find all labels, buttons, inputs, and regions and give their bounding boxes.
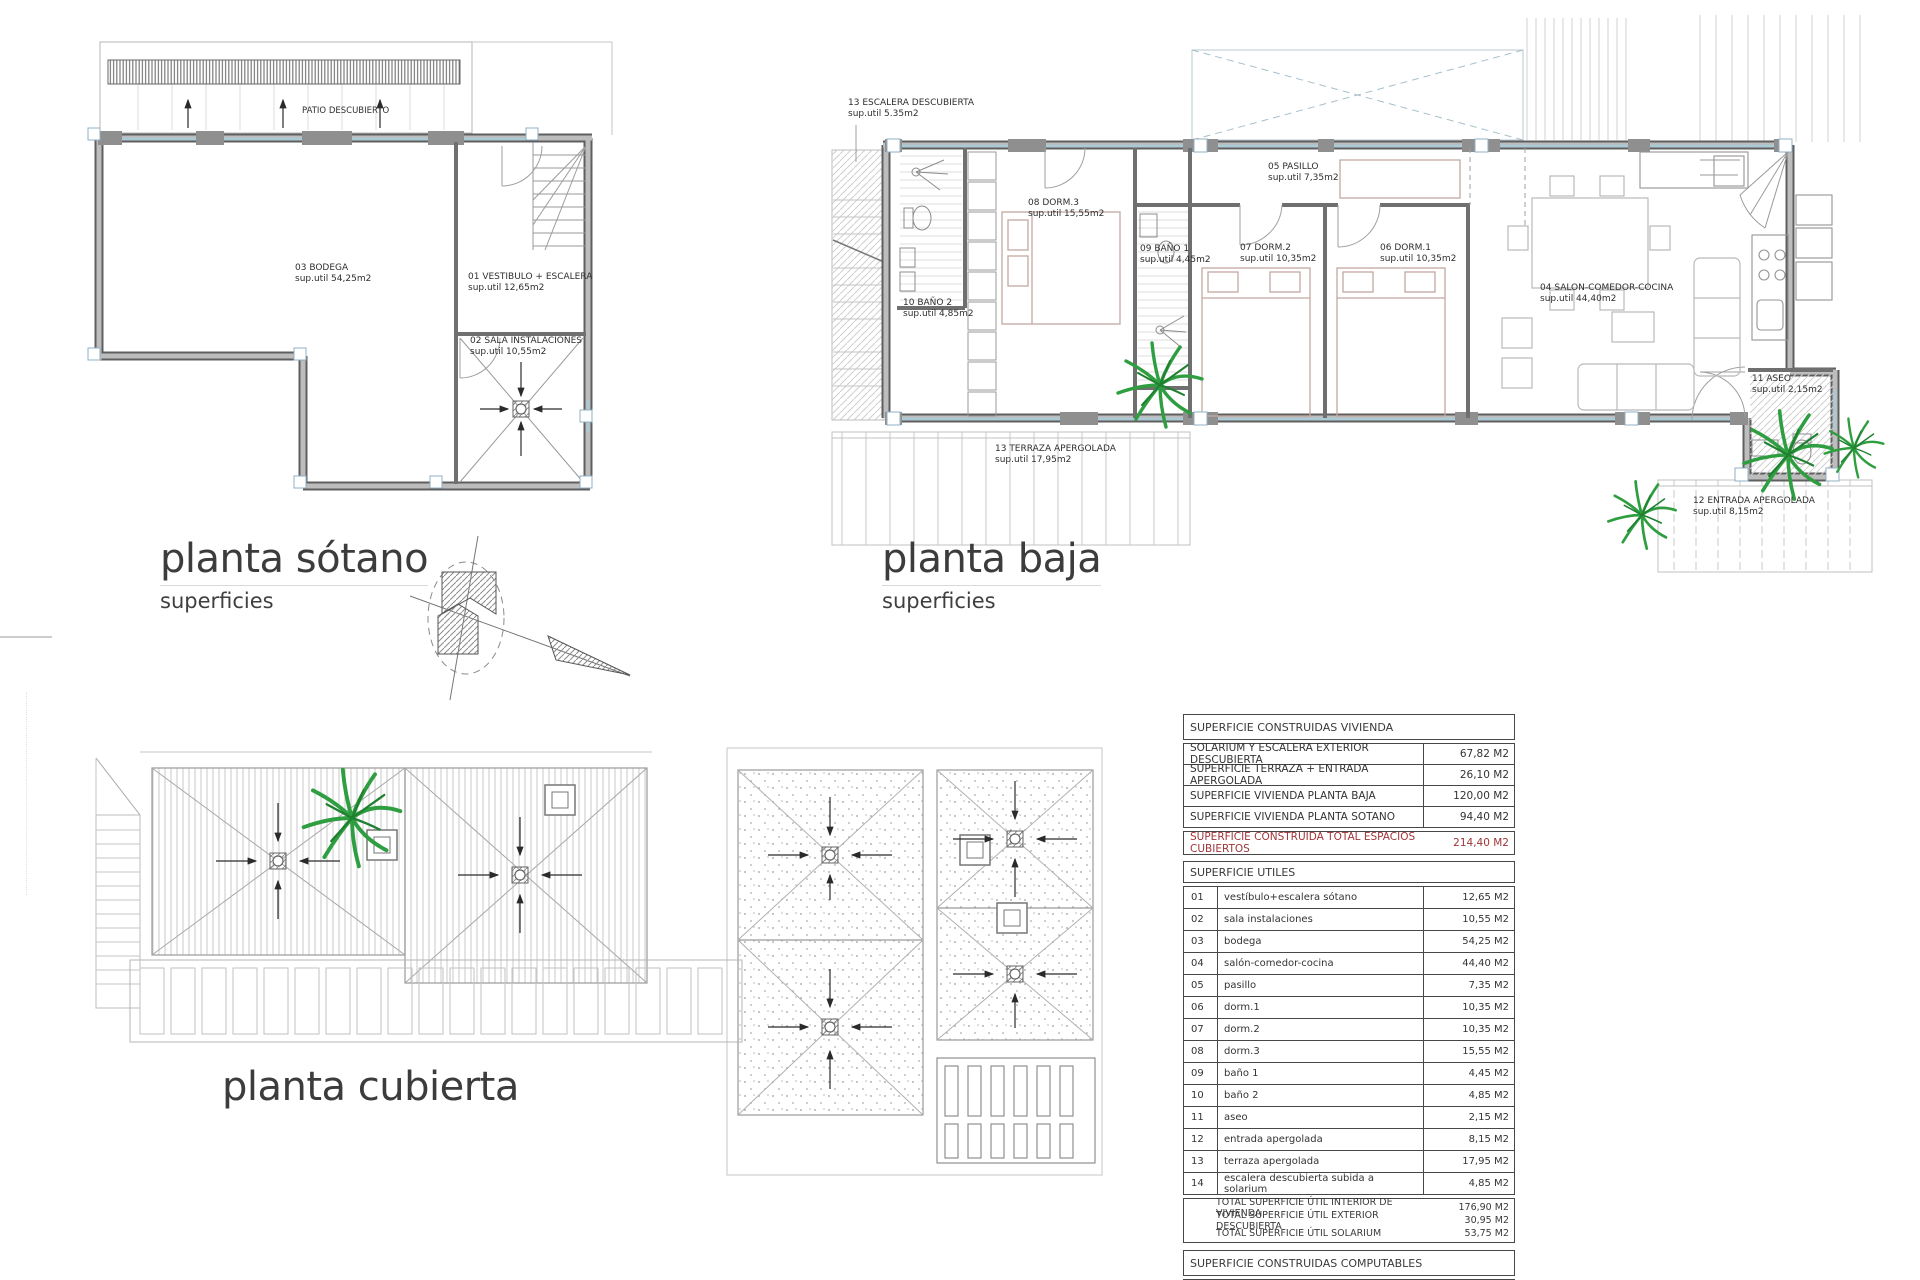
table-cell-number: 02 (1184, 909, 1218, 930)
table-row: 14escalera descubierta subida a solarium… (1184, 1172, 1514, 1194)
table-cell-value: 7,35 M2 (1423, 975, 1514, 996)
drawing-sheet: PATIO DESCUBIERTO 03 BODEGAsup.util 54,2… (0, 0, 1920, 1280)
table-cell-number: 08 (1184, 1041, 1218, 1062)
table-cell-label: entrada apergolada (1218, 1129, 1423, 1150)
patio-label: PATIO DESCUBIERTO (302, 106, 389, 116)
table-computables-header: SUPERFICIE CONSTRUIDAS COMPUTABLES (1183, 1250, 1515, 1276)
table-cell-number: 01 (1184, 887, 1218, 908)
table-row: 10baño 24,85 M2 (1184, 1084, 1514, 1106)
table-utiles-totals: TOTAL SUPERFICIE ÚTIL INTERIOR DE VIVIEN… (1183, 1198, 1515, 1243)
room-label-terraza: 13 TERRAZA APERGOLADAsup.util 17,95m2 (995, 444, 1116, 467)
title-planta-cubierta: planta cubierta (222, 1064, 519, 1113)
table-row: 02sala instalaciones10,55 M2 (1184, 908, 1514, 930)
table-cell-value: 53,75 M2 (1424, 1228, 1514, 1239)
table-construidas-body: SOLARIUM Y ESCALERA EXTERIOR DESCUBIERTA… (1183, 743, 1515, 828)
table-utiles-body: 01vestíbulo+escalera sótano12,65 M202sal… (1183, 886, 1515, 1195)
table-cell-label: dorm.1 (1218, 997, 1423, 1018)
table-cell-label: SOLARIUM Y ESCALERA EXTERIOR DESCUBIERTA (1184, 744, 1423, 764)
table-cell-value: 44,40 M2 (1423, 953, 1514, 974)
table-row: 13terraza apergolada17,95 M2 (1184, 1150, 1514, 1172)
table-row: 11aseo2,15 M2 (1184, 1106, 1514, 1128)
title-planta-sotano: planta sótano superficies (160, 536, 428, 613)
room-label-bano2: 10 BAÑO 2sup.util 4,85m2 (903, 298, 974, 321)
table-cell-label: TOTAL SUPERFICIE ÚTIL SOLARIUM (1184, 1228, 1424, 1239)
table-cell-value: 4,45 M2 (1423, 1063, 1514, 1084)
area-tables: SUPERFICIE CONSTRUIDAS VIVIENDA SOLARIUM… (1183, 714, 1515, 1280)
room-label-aseo: 11 ASEOsup.util 2,15m2 (1752, 374, 1823, 397)
room-label-entrada: 12 ENTRADA APERGOLADAsup.util 8,15m2 (1693, 496, 1815, 519)
table-row: 09baño 14,45 M2 (1184, 1062, 1514, 1084)
room-label-salon: 04 SALON-COMEDOR-COCINAsup.util 44,40m2 (1540, 283, 1673, 306)
table-cell-value: 10,55 M2 (1423, 909, 1514, 930)
table-cell-value: 4,85 M2 (1423, 1173, 1514, 1194)
table-construidas-total: SUPERFICIE CONSTRUIDA TOTAL ESPACIOS CUB… (1183, 831, 1515, 855)
table-row: SUPERFICIE TERRAZA + ENTRADA APERGOLADA2… (1184, 764, 1514, 785)
table-cell-value: 214,40 M2 (1424, 832, 1514, 854)
table-row: 12entrada apergolada8,15 M2 (1184, 1128, 1514, 1150)
room-label-sala-instalaciones: 02 SALA INSTALACIONESsup.util 10,55m2 (470, 336, 582, 359)
table-row: SOLARIUM Y ESCALERA EXTERIOR DESCUBIERTA… (1184, 744, 1514, 764)
baja-plan-drawing (832, 15, 1883, 572)
table-cell-value: 4,85 M2 (1423, 1085, 1514, 1106)
table-row: 01vestíbulo+escalera sótano12,65 M2 (1184, 887, 1514, 908)
table-row: 04salón-comedor-cocina44,40 M2 (1184, 952, 1514, 974)
table-cell-label: baño 1 (1218, 1063, 1423, 1084)
table-cell-value: 67,82 M2 (1423, 744, 1514, 764)
table-cell-label: dorm.3 (1218, 1041, 1423, 1062)
title-planta-baja: planta baja superficies (882, 536, 1101, 613)
table-cell-label: escalera descubierta subida a solarium (1218, 1173, 1423, 1194)
table-cell-label: vestíbulo+escalera sótano (1218, 887, 1423, 908)
table-cell-number: 07 (1184, 1019, 1218, 1040)
table-cell-label: sala instalaciones (1218, 909, 1423, 930)
table-cell-number: 12 (1184, 1129, 1218, 1150)
table-cell-number: 10 (1184, 1085, 1218, 1106)
table-row: 06dorm.110,35 M2 (1184, 996, 1514, 1018)
table-cell-label: salón-comedor-cocina (1218, 953, 1423, 974)
table-cell-label: dorm.2 (1218, 1019, 1423, 1040)
table-cell-number: 09 (1184, 1063, 1218, 1084)
room-label-escalera-descubierta: 13 ESCALERA DESCUBIERTAsup.util 5.35m2 (848, 98, 974, 121)
table-cell-number: 13 (1184, 1151, 1218, 1172)
table-cell-label: pasillo (1218, 975, 1423, 996)
table-cell-value: 120,00 M2 (1423, 786, 1514, 806)
table-row: SUPERFICIE VIVIENDA PLANTA SOTANO94,40 M… (1184, 806, 1514, 827)
table-cell-value: 176,90 M2 (1424, 1202, 1514, 1213)
table-cell-number: 04 (1184, 953, 1218, 974)
table-utiles-header: SUPERFICIE UTILES (1183, 861, 1515, 883)
table-cell-value: 8,15 M2 (1423, 1129, 1514, 1150)
room-label-dorm3: 08 DORM.3sup.util 15,55m2 (1028, 198, 1104, 221)
table-cell-label: SUPERFICIE TERRAZA + ENTRADA APERGOLADA (1184, 765, 1423, 785)
table-cell-value: 54,25 M2 (1423, 931, 1514, 952)
table-cell-label: SUPERFICIE CONSTRUIDA TOTAL ESPACIOS CUB… (1184, 832, 1424, 854)
table-cell-label: bodega (1218, 931, 1423, 952)
table-cell-value: 2,15 M2 (1423, 1107, 1514, 1128)
room-label-dorm2: 07 DORM.2sup.util 10,35m2 (1240, 243, 1316, 266)
table-cell-value: 94,40 M2 (1423, 807, 1514, 827)
table-row: SUPERFICIE VIVIENDA PLANTA BAJA120,00 M2 (1184, 785, 1514, 806)
table-cell-value: 17,95 M2 (1423, 1151, 1514, 1172)
table-cell-number: 05 (1184, 975, 1218, 996)
table-cell-label: terraza apergolada (1218, 1151, 1423, 1172)
table-cell-number: 11 (1184, 1107, 1218, 1128)
margin-microtext: ········································… (24, 635, 29, 895)
table-cell-value: 30,95 M2 (1424, 1215, 1514, 1226)
table-cell-value: 10,35 M2 (1423, 997, 1514, 1018)
table-construidas-header: SUPERFICIE CONSTRUIDAS VIVIENDA (1183, 714, 1515, 740)
table-cell-value: 15,55 M2 (1423, 1041, 1514, 1062)
table-row: 08dorm.315,55 M2 (1184, 1040, 1514, 1062)
room-label-bodega: 03 BODEGAsup.util 54,25m2 (295, 263, 371, 286)
table-cell-number: 03 (1184, 931, 1218, 952)
room-label-bano1: 09 BAÑO 1sup.util 4,45m2 (1140, 244, 1211, 267)
table-cell-label: aseo (1218, 1107, 1423, 1128)
room-label-vestibulo: 01 VESTIBULO + ESCALERAsup.util 12,65m2 (468, 272, 592, 295)
table-cell-label: baño 2 (1218, 1085, 1423, 1106)
room-label-dorm1: 06 DORM.1sup.util 10,35m2 (1380, 243, 1456, 266)
table-cell-number: 14 (1184, 1173, 1218, 1194)
table-cell-value: 10,35 M2 (1423, 1019, 1514, 1040)
table-row: 07dorm.210,35 M2 (1184, 1018, 1514, 1040)
table-cell-label: SUPERFICIE VIVIENDA PLANTA BAJA (1184, 786, 1423, 806)
table-row: 05pasillo7,35 M2 (1184, 974, 1514, 996)
table-row: 03bodega54,25 M2 (1184, 930, 1514, 952)
table-cell-value: 26,10 M2 (1423, 765, 1514, 785)
table-cell-value: 12,65 M2 (1423, 887, 1514, 908)
room-label-pasillo: 05 PASILLOsup.util 7,35m2 (1268, 162, 1339, 185)
table-cell-number: 06 (1184, 997, 1218, 1018)
north-arrow-icon (410, 536, 630, 700)
table-cell-label: SUPERFICIE VIVIENDA PLANTA SOTANO (1184, 807, 1423, 827)
